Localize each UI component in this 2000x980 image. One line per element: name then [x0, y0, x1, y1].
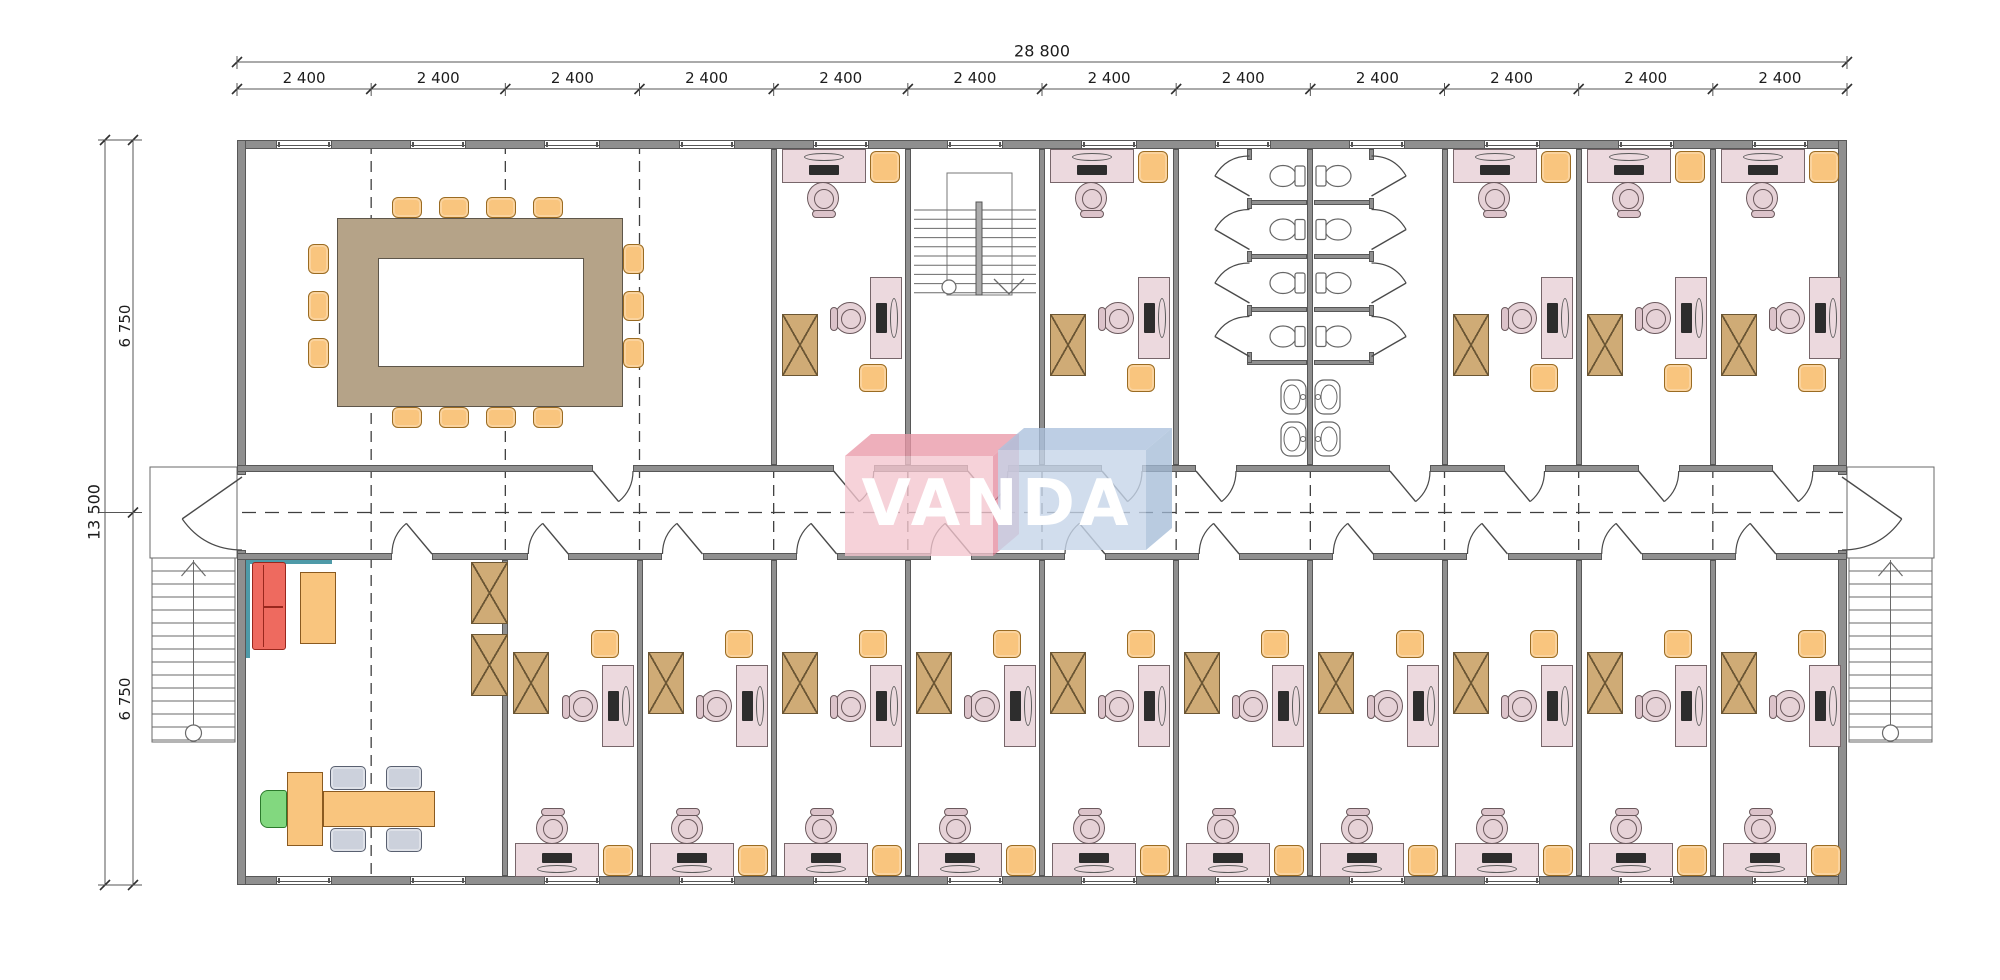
logo-box-blue-top [998, 428, 1172, 450]
logo-text: VANDA [862, 467, 1133, 541]
floor-plan: VANDA 28 800 13 500 2 4002 4002 4002 400… [0, 0, 2000, 980]
logo-box-pink-top [845, 434, 1019, 456]
